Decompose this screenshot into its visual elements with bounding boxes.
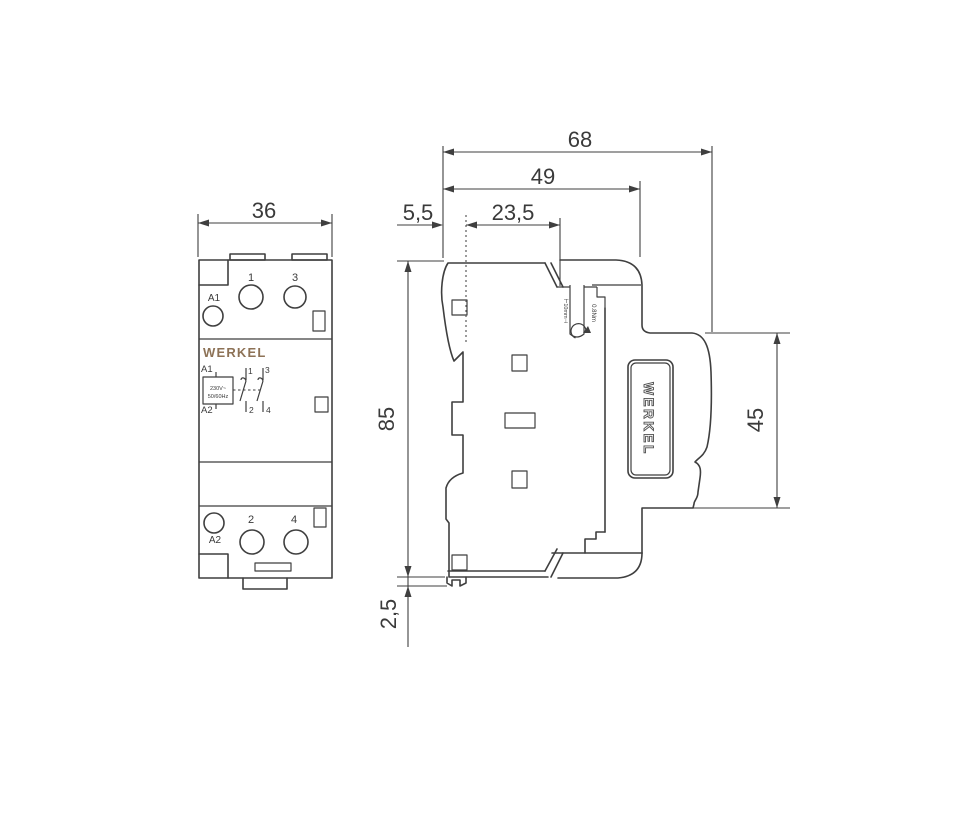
terminal-hole-1 (239, 285, 263, 309)
dim-45-arrow-bottom (774, 497, 781, 508)
schematic-c1: 1 (248, 366, 253, 376)
dim-68-arrow-right (701, 149, 712, 156)
front-top-left-notch (199, 260, 228, 285)
front-top-tab-left (230, 254, 265, 260)
screw-slot (570, 285, 584, 337)
side-front-face-outline (560, 260, 711, 553)
label-1: 1 (248, 272, 254, 284)
contact1-blade (240, 381, 246, 401)
werkel-side-plate: WERKEL (628, 360, 673, 478)
dim-36-arrow-right (321, 220, 332, 227)
dim-68-extension-lines (443, 146, 712, 332)
strip-length-label: ⊢10mm⊣ (562, 299, 569, 324)
schematic-a1: A1 (201, 364, 213, 375)
dim-85-label: 85 (374, 407, 399, 431)
dim-top-inset: 23,5 (466, 200, 560, 286)
terminal-step (597, 287, 605, 308)
dim-55-label: 5,5 (403, 200, 434, 225)
technical-drawing: A1 1 3 WERKEL A1 230V~ 50/60Hz A2 1 2 (0, 0, 968, 814)
front-right-slot-top (313, 311, 325, 331)
dim-45-label: 45 (743, 408, 768, 432)
schematic: A1 230V~ 50/60Hz A2 1 2 3 4 (201, 364, 271, 416)
dim-body-depth: 49 (443, 164, 640, 257)
front-view: A1 1 3 WERKEL A1 230V~ 50/60Hz A2 1 2 (198, 198, 332, 589)
side-square-upper (512, 355, 527, 371)
schematic-frequency: 50/60Hz (208, 394, 229, 400)
contact1-hook (241, 378, 246, 381)
dim-36-label: 36 (252, 198, 276, 223)
terminal-hole-a1 (203, 306, 223, 326)
dim-rail-clip: 2,5 (376, 577, 447, 647)
schematic-c3: 3 (265, 365, 270, 375)
front-top-tab-right (292, 254, 327, 260)
dim-front-width: 36 (198, 198, 332, 257)
side-view: ⊢10mm⊣ 0.8Nm WERKEL 68 (374, 127, 790, 647)
dim-49-arrow-left (443, 186, 454, 193)
bottom-band-outline (558, 553, 642, 578)
terminal-hole-4 (284, 530, 308, 554)
drawing-canvas: A1 1 3 WERKEL A1 230V~ 50/60Hz A2 1 2 (0, 0, 968, 814)
dim-235-arrow-right (549, 222, 560, 229)
torque-label: 0.8Nm (590, 304, 596, 322)
side-slot-middle (505, 413, 535, 428)
terminal-hole-a2 (204, 513, 224, 533)
label-3: 3 (292, 272, 298, 284)
dim-68-label: 68 (568, 127, 592, 152)
schematic-a2: A2 (201, 405, 213, 416)
dim-235-label: 23,5 (492, 200, 535, 225)
front-bottom-tab (243, 578, 287, 589)
terminal-hole-3 (284, 286, 306, 308)
dim-total-depth: 68 (443, 127, 712, 332)
werkel-plate-logo: WERKEL (641, 382, 656, 456)
werkel-logo: WERKEL (203, 345, 267, 360)
contact2-hook (258, 378, 263, 381)
dim-45-arrow-top (774, 333, 781, 344)
schematic-c4: 4 (266, 405, 271, 415)
label-2: 2 (248, 514, 254, 526)
side-square-lower (512, 471, 527, 488)
dim-85-arrow-top (405, 261, 412, 272)
dim-235-arrow-left (466, 222, 477, 229)
side-back-body-outline (442, 263, 548, 577)
dim-49-arrow-right (629, 186, 640, 193)
front-bottom-left-notch (199, 554, 228, 578)
front-right-slot-bottom (314, 508, 326, 527)
label-a2: A2 (209, 535, 222, 546)
dim-25-arrow (405, 586, 412, 597)
dim-55-arrow (432, 222, 443, 229)
front-right-square (315, 397, 328, 412)
schematic-voltage: 230V~ (210, 386, 226, 392)
dim-back-inset: 5,5 (397, 200, 443, 229)
contact2-blade (257, 381, 263, 401)
dim-height: 85 (374, 261, 445, 577)
front-bottom-slot (255, 563, 291, 571)
label-4: 4 (291, 514, 297, 526)
schematic-c2: 2 (249, 405, 254, 415)
dim-85-arrow-bottom (405, 566, 412, 577)
terminal-hole-2 (240, 530, 264, 554)
dim-68-arrow-left (443, 149, 454, 156)
dim-25-label: 2,5 (376, 599, 401, 630)
dim-36-arrow-left (198, 220, 209, 227)
side-square-top-left (452, 300, 467, 315)
side-square-bottom-left (452, 555, 467, 570)
label-a1: A1 (208, 293, 221, 304)
dim-49-label: 49 (531, 164, 555, 189)
bottom-step (585, 532, 605, 553)
din-clip-tab (447, 577, 466, 586)
